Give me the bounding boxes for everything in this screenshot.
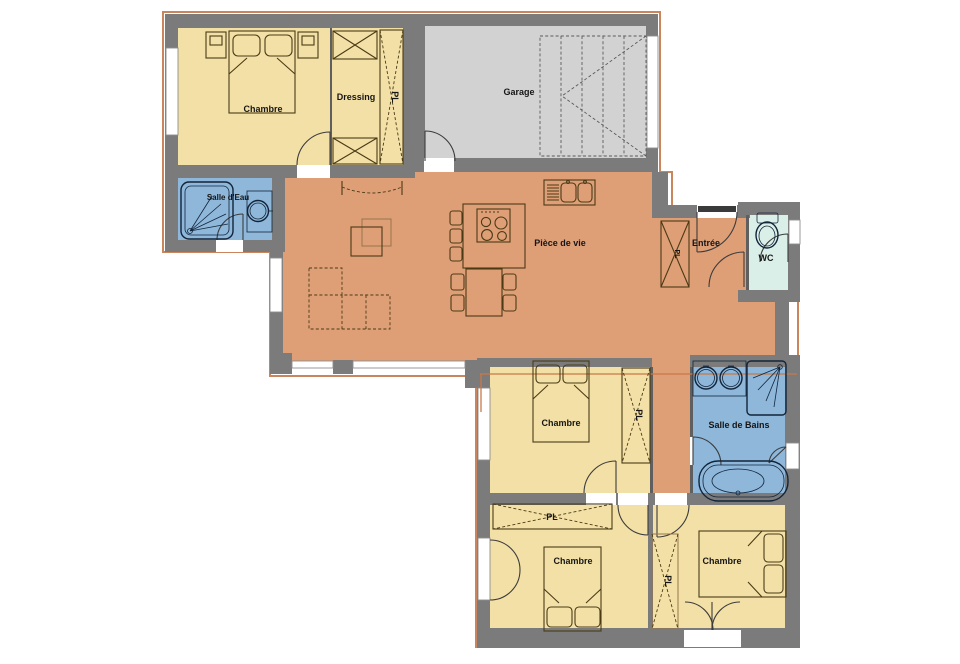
doorway-chambre-se xyxy=(655,493,687,505)
label-garage: Garage xyxy=(503,87,534,97)
window-salle-de-bains xyxy=(786,443,799,469)
french-door-chambre-sw xyxy=(478,538,490,600)
label-placard-se: PL xyxy=(663,575,673,587)
label-chambre-se: Chambre xyxy=(702,556,741,566)
room-chambre-mid-floor xyxy=(488,367,650,493)
room-entree-floor xyxy=(655,218,748,292)
garage-door-opening xyxy=(647,36,658,148)
label-placard-nw: PL xyxy=(390,91,400,103)
label-chambre-nw: Chambre xyxy=(243,104,282,114)
window-living-west xyxy=(270,258,282,312)
window-chambre-nw xyxy=(166,48,178,135)
floor-plan: Chambre Dressing PL Garage Salle d'Eau P… xyxy=(0,0,960,664)
doorway-chambre-mid xyxy=(586,493,616,505)
label-piece-de-vie: Pièce de vie xyxy=(534,238,586,248)
window-wc xyxy=(789,220,800,244)
room-garage-floor xyxy=(425,26,648,158)
label-chambre-sw: Chambre xyxy=(553,556,592,566)
corridor-floor xyxy=(650,367,693,505)
label-placard-entree: PL xyxy=(673,250,680,260)
label-placard-mid: PL xyxy=(634,409,644,421)
label-chambre-mid: Chambre xyxy=(541,418,580,428)
front-door-sill xyxy=(698,206,736,212)
window-living-south-1 xyxy=(292,361,333,368)
doorway-chambre-nw xyxy=(297,165,330,178)
label-entree: Entrée xyxy=(692,238,720,248)
doorway-chambre-sw xyxy=(618,493,648,505)
label-wc: WC xyxy=(759,253,774,263)
doorway-garage xyxy=(424,158,454,172)
floor-plan-canvas: Chambre Dressing PL Garage Salle d'Eau P… xyxy=(0,0,960,664)
window-living-south-2 xyxy=(353,361,465,368)
label-salle-de-bains: Salle de Bains xyxy=(708,420,769,430)
label-salle-deau: Salle d'Eau xyxy=(207,193,249,202)
window-chambre-mid xyxy=(478,388,490,460)
label-placard-sw: PL xyxy=(546,512,558,522)
french-door-chambre-se-opening xyxy=(684,630,741,647)
doorway-salle-deau xyxy=(216,240,243,252)
label-dressing: Dressing xyxy=(337,92,376,102)
